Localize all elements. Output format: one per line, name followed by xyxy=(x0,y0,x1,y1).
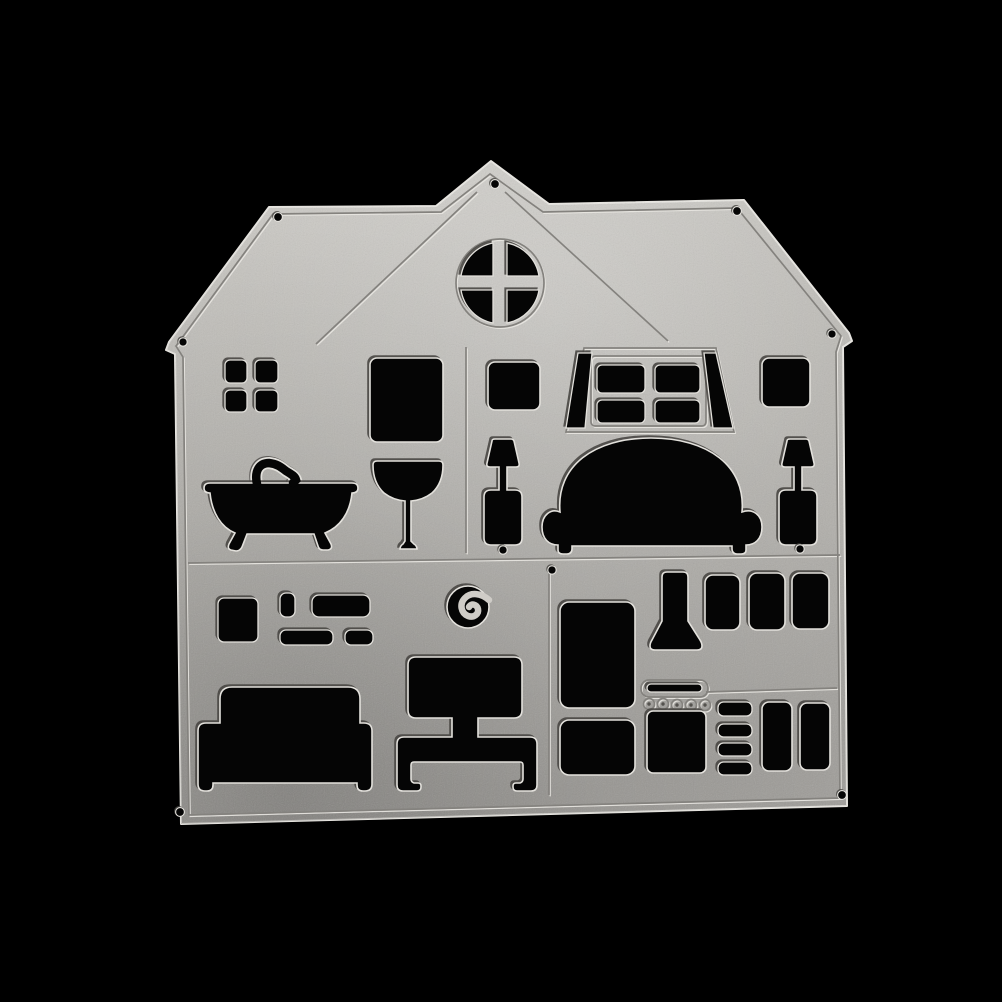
fridge-lower-door-cutout xyxy=(560,720,635,775)
cupboard-door-cutout xyxy=(792,573,829,629)
oven-door-cutout xyxy=(647,711,706,773)
tall-cupboard-door-cutout xyxy=(762,702,792,771)
pin-hole xyxy=(176,808,185,817)
window-pane xyxy=(255,390,278,412)
window-pane xyxy=(255,360,278,383)
fridge-upper-door-cutout xyxy=(560,602,635,708)
mirror-panel-cutout xyxy=(370,358,443,442)
picture-frame xyxy=(280,593,295,617)
dormer-pane xyxy=(597,400,645,423)
pin-hole xyxy=(796,545,804,553)
table-lamp-left-cutout xyxy=(484,439,522,545)
pin-hole xyxy=(491,180,500,189)
pin-hole xyxy=(733,207,742,216)
table-lamp-right-cutout xyxy=(779,439,817,545)
pin-hole xyxy=(548,566,556,574)
shelf-slat xyxy=(718,702,752,716)
small-window-cutout xyxy=(488,362,540,410)
stove-slit-cutout xyxy=(647,684,702,692)
pin-hole xyxy=(499,546,507,554)
window-pane xyxy=(225,390,247,412)
pin-hole xyxy=(828,330,836,338)
bed-cutout xyxy=(198,687,372,791)
picture-frame xyxy=(312,595,370,617)
shelf-slat xyxy=(718,762,752,775)
wall-clock-cutout xyxy=(447,586,489,628)
product-photo-die-cut-house xyxy=(0,0,1002,1002)
window-pane xyxy=(225,360,247,383)
picture-frame xyxy=(218,598,258,642)
tall-cupboard-door-cutout xyxy=(800,703,830,770)
pin-hole xyxy=(179,338,187,346)
shelf-slat xyxy=(718,724,752,737)
photo-stage xyxy=(0,0,1002,1002)
dormer-pane xyxy=(655,400,700,423)
picture-frame xyxy=(345,630,373,645)
dormer-pane xyxy=(597,365,645,393)
dormer-pane xyxy=(655,365,700,393)
upper-right-window-cutout xyxy=(762,358,810,407)
shelf-slat xyxy=(718,743,752,756)
pin-hole xyxy=(274,213,283,222)
cupboard-door-cutout xyxy=(705,575,740,630)
cupboard-door-cutout xyxy=(749,573,785,630)
pin-hole xyxy=(838,791,847,800)
die-plate xyxy=(0,0,1002,1002)
picture-frame xyxy=(280,630,333,645)
